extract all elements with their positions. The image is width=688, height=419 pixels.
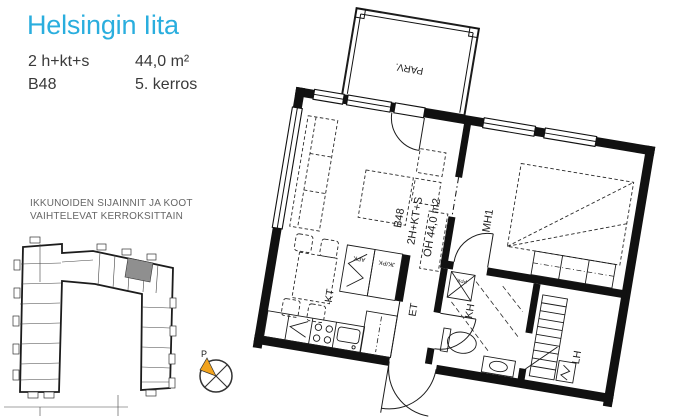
armchair-1	[416, 149, 446, 177]
bedroom-label: MH1	[480, 208, 496, 233]
living-type-code: 2H+KT+S	[405, 196, 425, 246]
bathroom-label: KH	[463, 303, 477, 319]
bedroom-door	[454, 228, 493, 267]
reservation-symbol	[289, 319, 308, 338]
hall-closet	[360, 311, 398, 358]
entrance-door	[381, 361, 436, 419]
fridge-label: JK/PK	[378, 258, 395, 267]
appliance-block: APK JK/PK	[340, 245, 403, 301]
kitchen-label: KT	[323, 288, 337, 304]
living-unit-code: B48	[392, 208, 407, 229]
stove-icon	[313, 324, 333, 344]
balcony-door	[386, 112, 424, 150]
bed	[507, 163, 633, 265]
toilet-icon	[440, 328, 478, 356]
sink-icon	[336, 327, 361, 350]
dishwasher-label: APK	[353, 254, 366, 262]
sauna-label: LH	[570, 350, 584, 365]
dining-set	[281, 233, 340, 323]
hall-label: ET	[407, 302, 421, 318]
washer-label: PPK	[456, 276, 468, 284]
living-room-label: OH 44,0 m2	[422, 197, 444, 257]
page: Helsingin Iita 2 h+kt+s 44,0 m² B48 5. k…	[0, 0, 688, 419]
washing-machine: PPK	[447, 271, 475, 301]
floor-plan: PARV.	[0, 0, 688, 419]
